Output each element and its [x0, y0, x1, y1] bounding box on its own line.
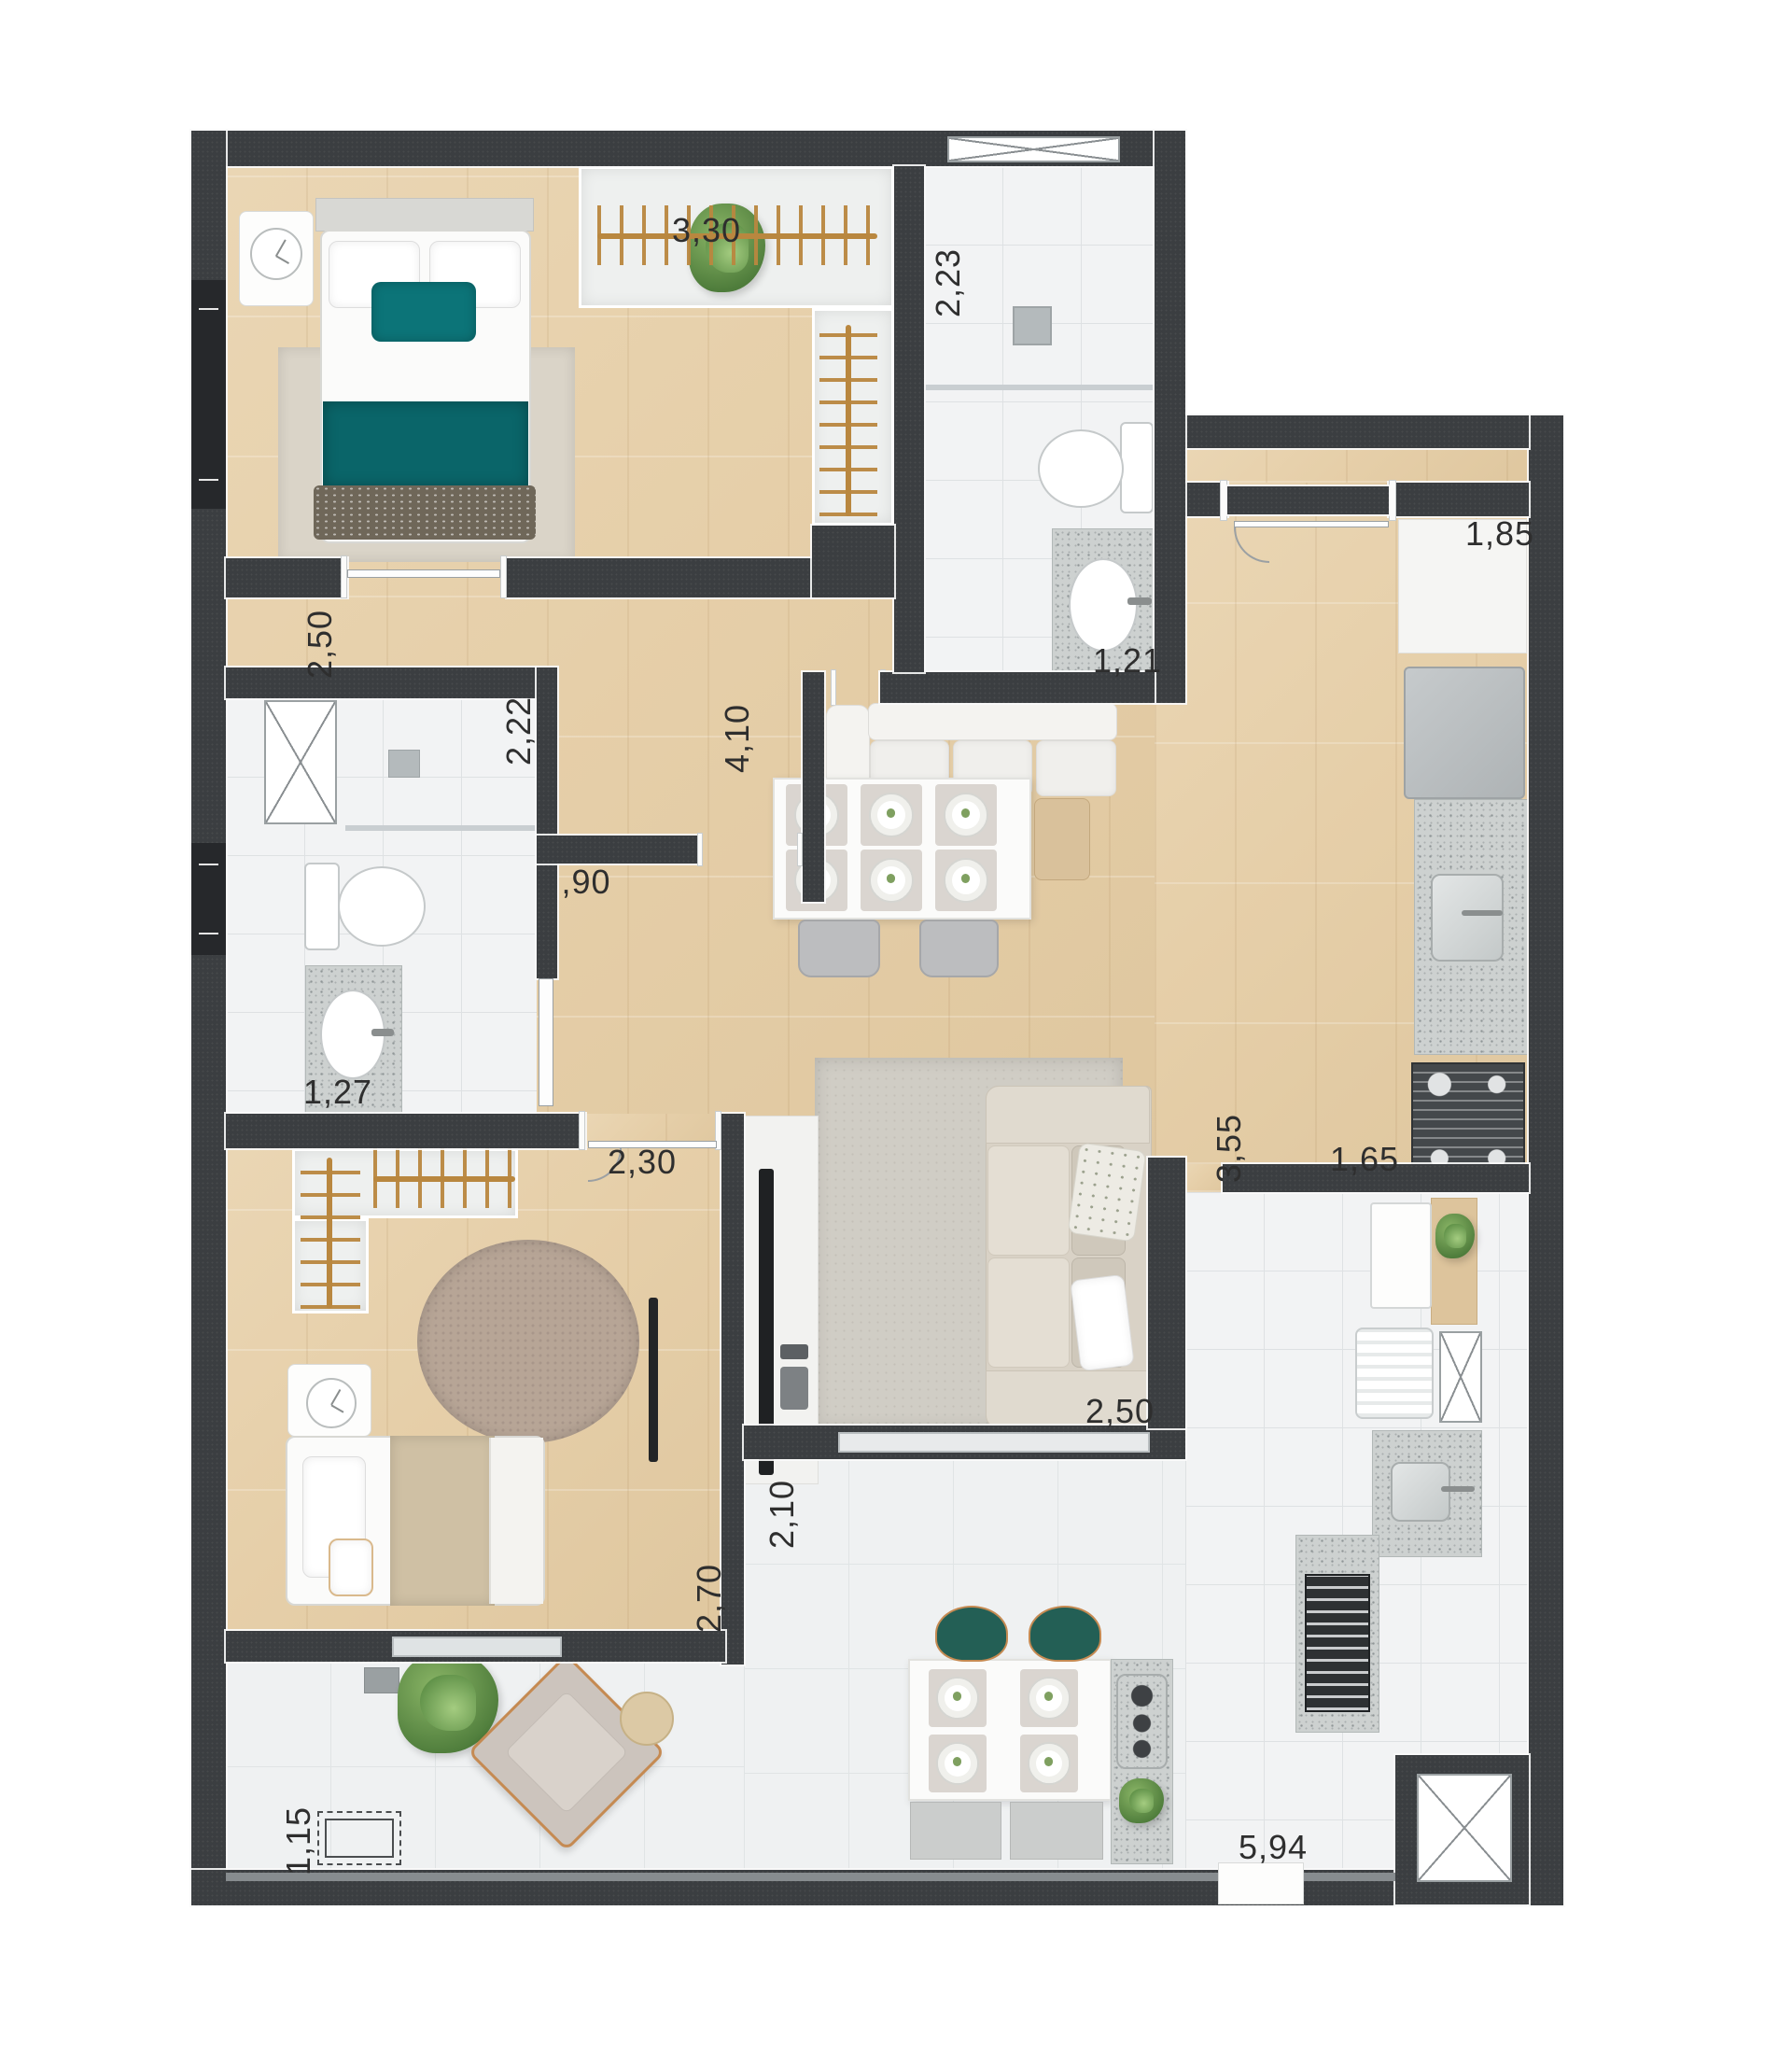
dim-balcony-left-width: 1,15 [279, 1806, 318, 1875]
wall-right [1529, 415, 1563, 1905]
service-round-sink-icon [1391, 1462, 1450, 1522]
place-setting [861, 850, 922, 911]
bath2-toilet-icon [338, 866, 426, 947]
grill-icon [1305, 1574, 1370, 1712]
dim-kitchen-width: 1,65 [1330, 1140, 1399, 1179]
place-setting [1020, 1669, 1078, 1727]
dim-bedroom1-width: 3,30 [672, 211, 741, 250]
dim-suite-bath-depth: 2,23 [929, 248, 968, 317]
balcony-sliding-door [838, 1432, 1150, 1453]
entrance-door-frame [1389, 480, 1396, 521]
bedroom1-door-frame [341, 555, 347, 598]
balcony-cooktop-icon [1116, 1674, 1168, 1769]
place-setting [935, 784, 997, 846]
bed1-blanket [323, 401, 528, 487]
dim-bath2-vanity: 1,27 [303, 1073, 372, 1112]
bed2-duvet [489, 1438, 543, 1604]
hall-passage-frame [697, 833, 703, 866]
balcony-shaft [1417, 1774, 1512, 1882]
dim-kitchen-counter: 1,85 [1465, 514, 1534, 554]
dim-balcony-depth: 2,10 [763, 1480, 802, 1549]
sofa-seat-cushion [987, 1257, 1070, 1368]
bath2-shaft-window [264, 700, 337, 824]
laundry-tank-icon [1355, 1328, 1434, 1419]
alarm-clock-icon [306, 1378, 357, 1428]
bath2-window [191, 843, 226, 955]
suite-door-frame-left [831, 669, 836, 706]
bath2-shower-glass [345, 825, 543, 831]
dim-bath2-depth: 2,22 [499, 696, 539, 766]
bedroom1-door-leaf [347, 569, 500, 578]
washer-icon [1370, 1202, 1432, 1309]
dining-bench-back [868, 703, 1117, 740]
dim-balcony-width: 5,94 [1239, 1828, 1308, 1867]
suite-sink-icon [1069, 558, 1138, 652]
balcony-green-chair [935, 1606, 1008, 1662]
sofa-seat-cushion [987, 1145, 1070, 1256]
floor-entry-hallway [1185, 448, 1529, 483]
hall-passage-frame [797, 833, 803, 866]
balcony-dashed-box [317, 1811, 401, 1865]
dim-kitchen-depth: 3,55 [1210, 1114, 1249, 1183]
sofa-armrest-top [986, 1086, 1150, 1144]
wall-bedroom1-south-b [507, 558, 812, 597]
bed1-folded-throw [314, 485, 536, 540]
place-setting [929, 1735, 987, 1792]
suite-shower-drain [1013, 306, 1052, 345]
stove-icon [1411, 1062, 1525, 1178]
bedroom2-round-rug [417, 1240, 639, 1443]
bath2-shower-mixer [388, 750, 420, 778]
closet2-rod-top [373, 1176, 515, 1182]
entrance-door-band [1227, 486, 1389, 514]
wall-bath2-top [226, 667, 537, 698]
dim-bedroom2-depth: 2,70 [690, 1564, 729, 1633]
wall-bath2-right [537, 667, 557, 978]
balcony-sill [1218, 1862, 1304, 1904]
alarm-clock-icon [250, 228, 302, 280]
closet1-rod-side [846, 325, 851, 516]
dining-end-stool [1034, 798, 1090, 880]
tv-media-box [780, 1367, 808, 1410]
wall-hall-jut [537, 836, 700, 864]
balcony-bench [1010, 1802, 1103, 1860]
dim-bedroom1-depth: 2,50 [301, 610, 340, 679]
suite-toilet-icon [1038, 429, 1124, 508]
balcony-bench [910, 1802, 1001, 1860]
bed1-headboard [315, 198, 534, 232]
dim-suite-vanity-width: 1,21 [1093, 641, 1162, 681]
dining-chair [798, 920, 880, 977]
bedroom1-window [191, 280, 226, 509]
wall-dining-left [803, 672, 824, 902]
bed1-accent-pillow [371, 282, 476, 342]
service-shaft [1439, 1331, 1482, 1423]
bath2-door-leaf [539, 978, 553, 1106]
bedroom2-window [392, 1637, 562, 1657]
balcony-side-table [620, 1692, 674, 1746]
bedroom1-door-frame [500, 555, 507, 598]
dim-dining-depth: 4,10 [718, 704, 757, 773]
entrance-door-frame [1220, 480, 1227, 521]
wall-hallway-north [1185, 415, 1529, 448]
bed2-blanket [390, 1436, 495, 1606]
floor-plan: 3,30 2,23 2,50 1,21 1,85 2,22 ,90 4,10 1… [0, 0, 1792, 2051]
wall-suite-right [1155, 131, 1185, 703]
bedroom2-door-frame [579, 1111, 585, 1150]
bath2-toilet-cistern [304, 863, 340, 950]
fridge-icon [1404, 667, 1525, 799]
bed2-deco-pillow [329, 1538, 373, 1596]
dining-chair [919, 920, 999, 977]
place-setting [861, 784, 922, 846]
dim-living-width: 2,50 [1085, 1392, 1155, 1431]
bath2-faucet-icon [371, 1029, 394, 1036]
sofa-white-pillow [1070, 1274, 1135, 1371]
suite-faucet-icon [1127, 597, 1152, 605]
dim-bedroom2-width: 2,30 [608, 1143, 677, 1182]
bedroom2-tv-icon [649, 1298, 658, 1462]
suite-toilet-cistern [1120, 422, 1154, 513]
dim-hall-passage: ,90 [561, 863, 610, 902]
wall-closet-bath [894, 166, 924, 672]
wall-living-right [1148, 1158, 1185, 1428]
kitchen-sink-icon [1431, 874, 1504, 962]
sofa-floral-pillow [1068, 1142, 1147, 1242]
dining-bench-cushion [1036, 740, 1116, 796]
closet2-rod-side [327, 1158, 332, 1309]
balcony-green-chair [1029, 1606, 1101, 1662]
wall-closet-south [812, 526, 894, 597]
place-setting [929, 1669, 987, 1727]
entrance-door-leaf [1234, 521, 1389, 527]
kitchen-faucet-icon [1462, 910, 1503, 916]
place-setting [935, 850, 997, 911]
suite-shower-glass [924, 385, 1155, 390]
tv-remote-icon [780, 1344, 808, 1359]
wall-bedroom1-south-a [226, 558, 347, 597]
place-setting [1020, 1735, 1078, 1792]
wall-bedroom2-top [226, 1114, 585, 1148]
balcony-floor-drain [364, 1667, 399, 1693]
suite-bath-window [947, 136, 1120, 162]
wall-entry-right [1389, 483, 1529, 516]
service-faucet-icon [1441, 1486, 1475, 1492]
